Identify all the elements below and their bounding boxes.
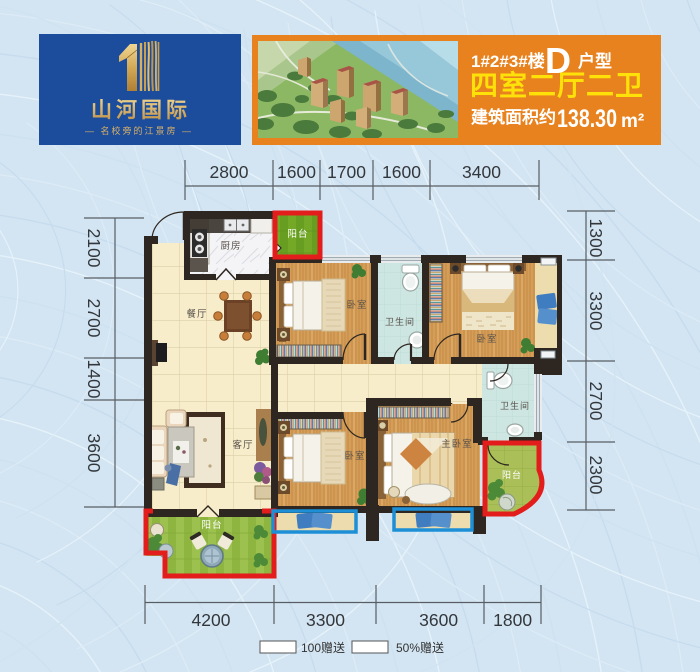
- svg-text:1600: 1600: [382, 162, 421, 182]
- svg-text:客厅: 客厅: [232, 439, 253, 451]
- svg-text:卧室: 卧室: [346, 299, 367, 311]
- svg-text:1800: 1800: [493, 610, 532, 630]
- svg-text:卧室: 卧室: [344, 450, 365, 462]
- svg-text:主卧室: 主卧室: [441, 438, 473, 450]
- svg-text:2800: 2800: [210, 162, 249, 182]
- svg-text:1300: 1300: [586, 219, 606, 258]
- svg-text:3400: 3400: [462, 162, 501, 182]
- svg-text:1600: 1600: [277, 162, 316, 182]
- svg-text:m²: m²: [621, 111, 644, 132]
- svg-text:3600: 3600: [84, 434, 104, 473]
- svg-text:阳台: 阳台: [287, 228, 308, 240]
- svg-text:4200: 4200: [192, 610, 231, 630]
- svg-text:卫生间: 卫生间: [500, 400, 530, 411]
- svg-text:3300: 3300: [586, 292, 606, 331]
- svg-text:3600: 3600: [419, 610, 458, 630]
- svg-text:阳台: 阳台: [502, 469, 522, 480]
- svg-text:100赠送: 100赠送: [301, 640, 345, 655]
- svg-text:138.30: 138.30: [557, 105, 617, 133]
- svg-text:阳台: 阳台: [201, 519, 222, 531]
- svg-text:卧室: 卧室: [476, 333, 497, 345]
- svg-text:山河国际: 山河国际: [91, 99, 191, 122]
- svg-text:1400: 1400: [84, 360, 104, 399]
- svg-text:厨房: 厨房: [220, 240, 241, 252]
- svg-text:1#2#3#楼: 1#2#3#楼: [471, 51, 545, 71]
- svg-text:— 名校旁的江景房 —: — 名校旁的江景房 —: [85, 125, 193, 136]
- svg-text:3300: 3300: [306, 610, 345, 630]
- svg-text:卫生间: 卫生间: [385, 316, 415, 327]
- svg-text:餐厅: 餐厅: [186, 308, 207, 320]
- svg-text:户型: 户型: [578, 51, 612, 71]
- svg-text:1700: 1700: [327, 162, 366, 182]
- svg-text:建筑面积约: 建筑面积约: [471, 107, 556, 127]
- svg-text:2300: 2300: [586, 456, 606, 495]
- svg-text:2100: 2100: [84, 229, 104, 268]
- svg-text:2700: 2700: [84, 299, 104, 338]
- svg-text:50%赠送: 50%赠送: [396, 640, 444, 655]
- svg-text:四室二厅二卫: 四室二厅二卫: [470, 69, 644, 101]
- svg-text:2700: 2700: [586, 382, 606, 421]
